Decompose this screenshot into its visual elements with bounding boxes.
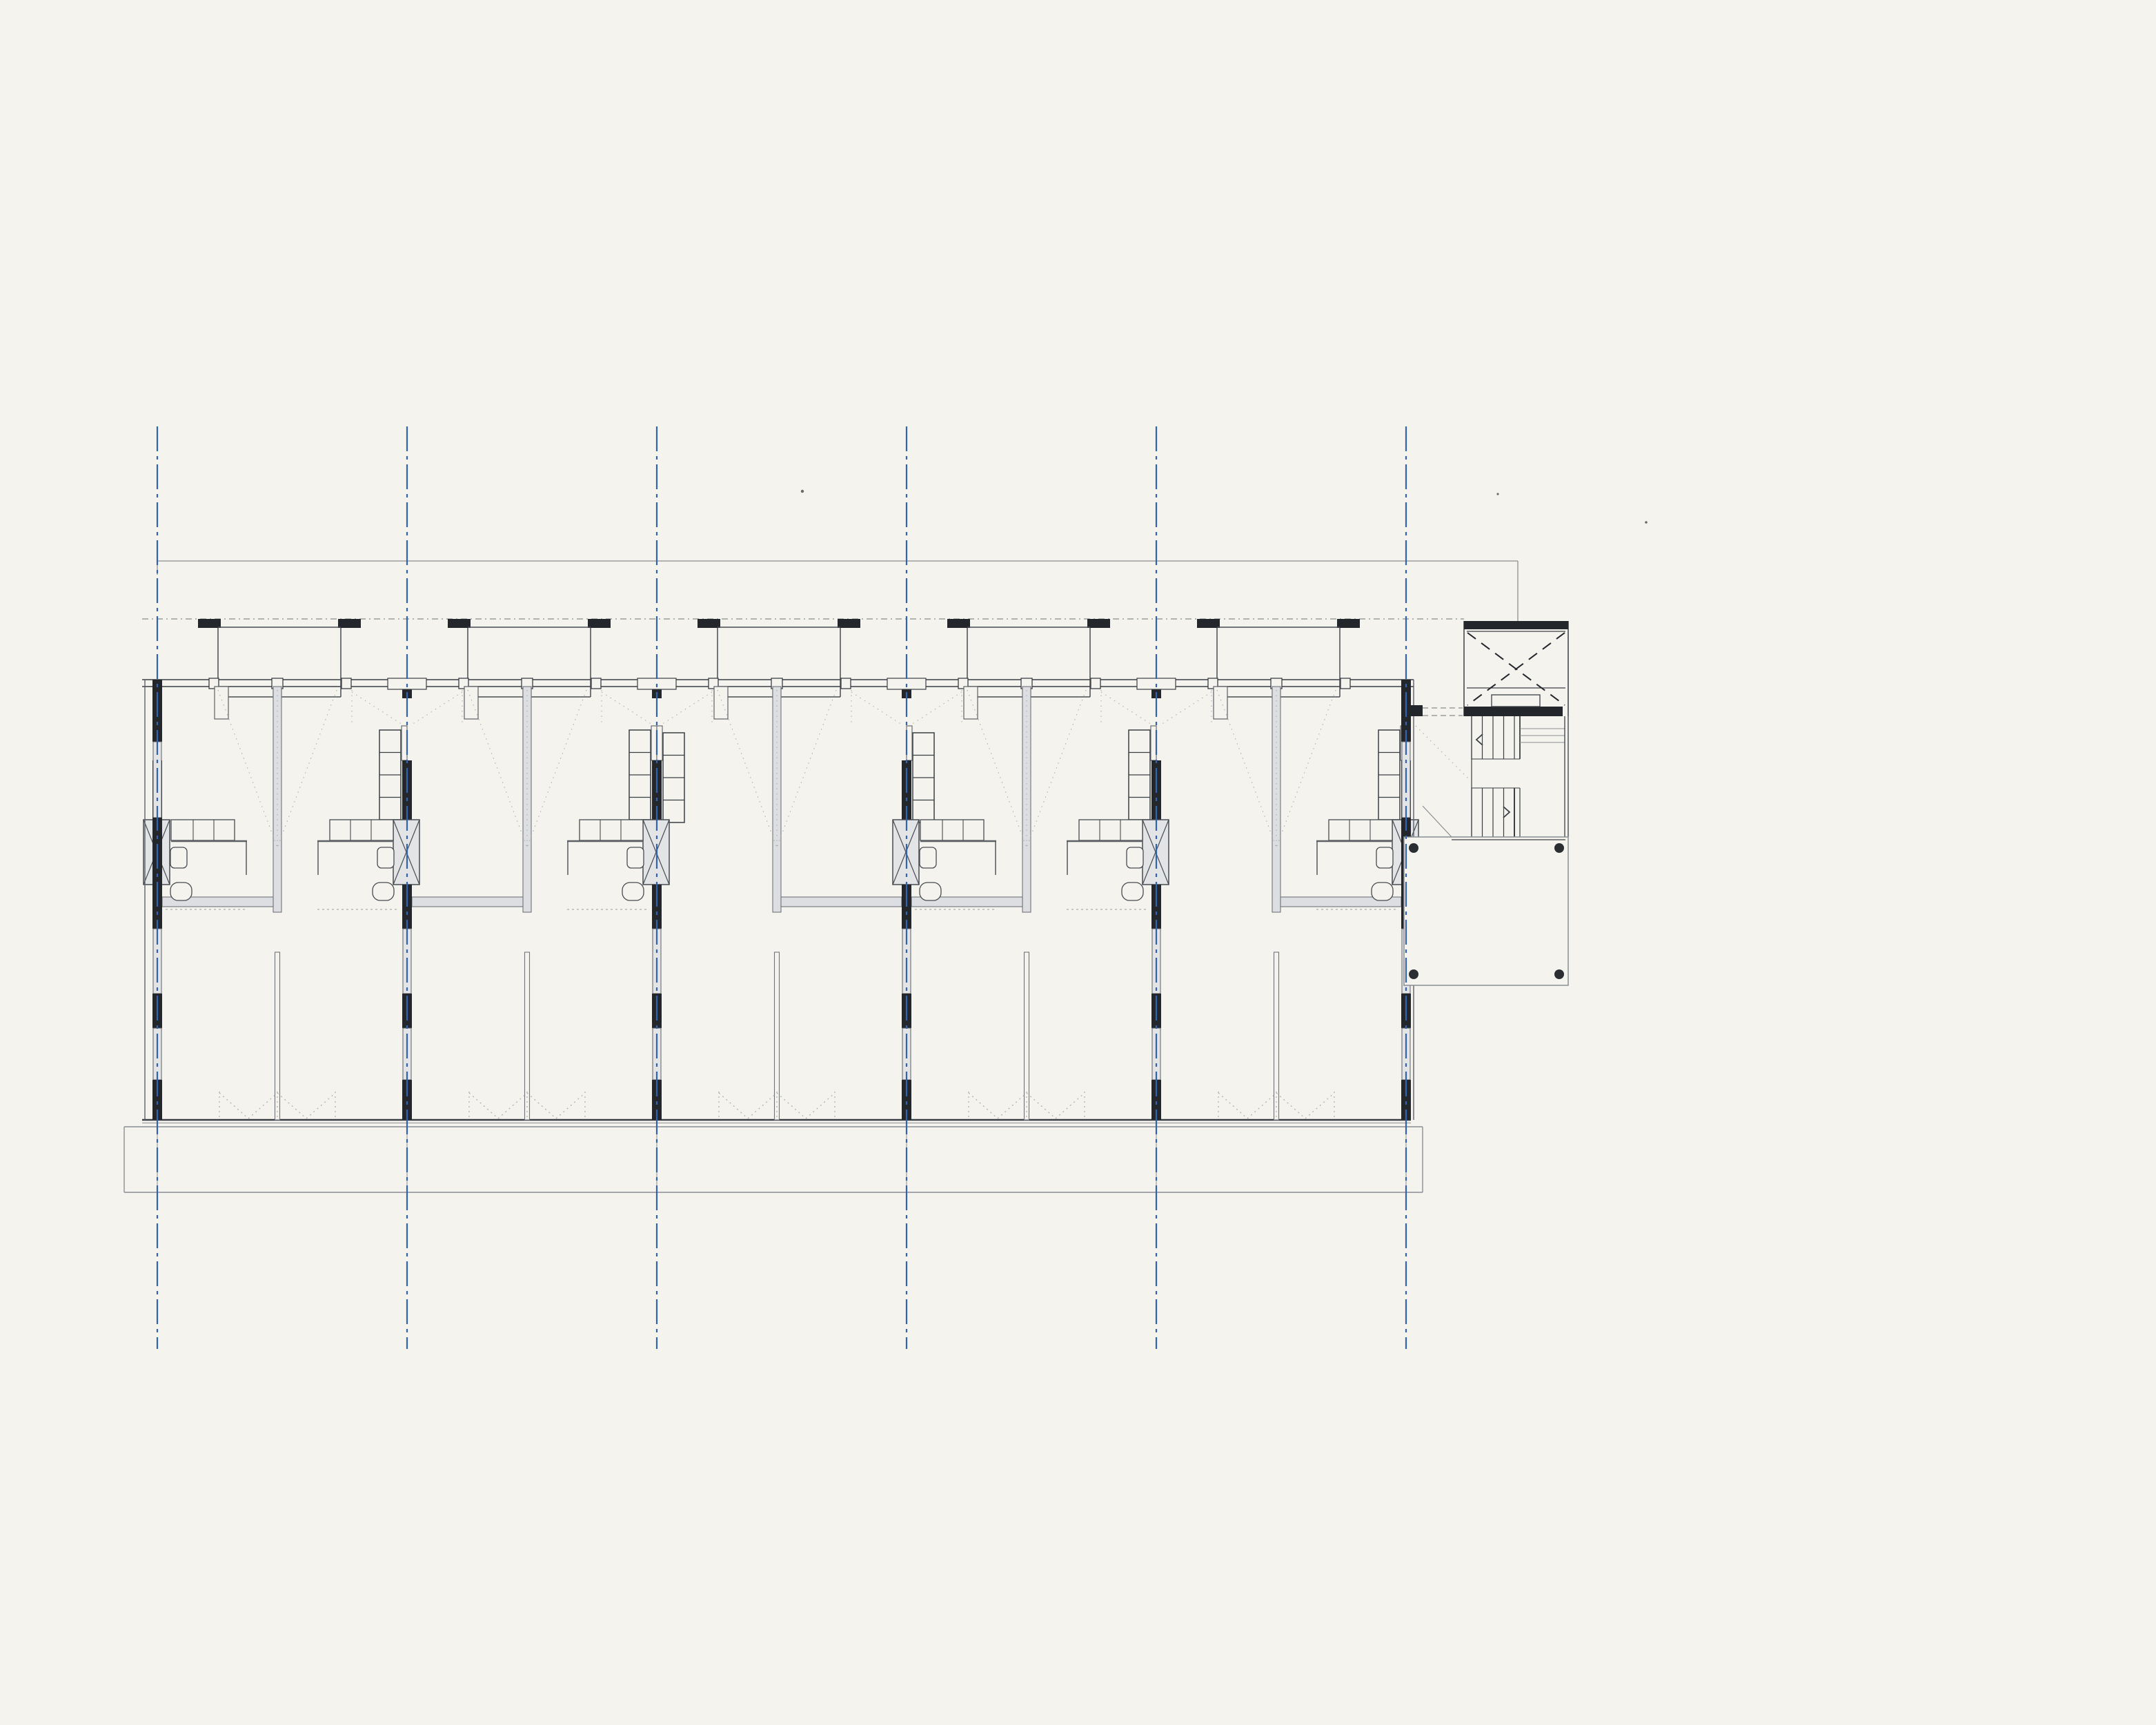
- paper-speck: [801, 490, 804, 493]
- paper-speck: [1496, 493, 1499, 495]
- deck-column-dot: [1409, 969, 1418, 979]
- entrance-deck: [1404, 837, 1568, 985]
- drawing-sheet: [0, 0, 2156, 1725]
- deck-column-dot: [1409, 843, 1418, 853]
- deck-column-dot: [1554, 969, 1564, 979]
- paper-speck: [1645, 521, 1648, 524]
- paper: [0, 0, 2156, 1725]
- deck-column-dot: [1554, 843, 1564, 853]
- floor-plan-canvas: [0, 0, 2156, 1725]
